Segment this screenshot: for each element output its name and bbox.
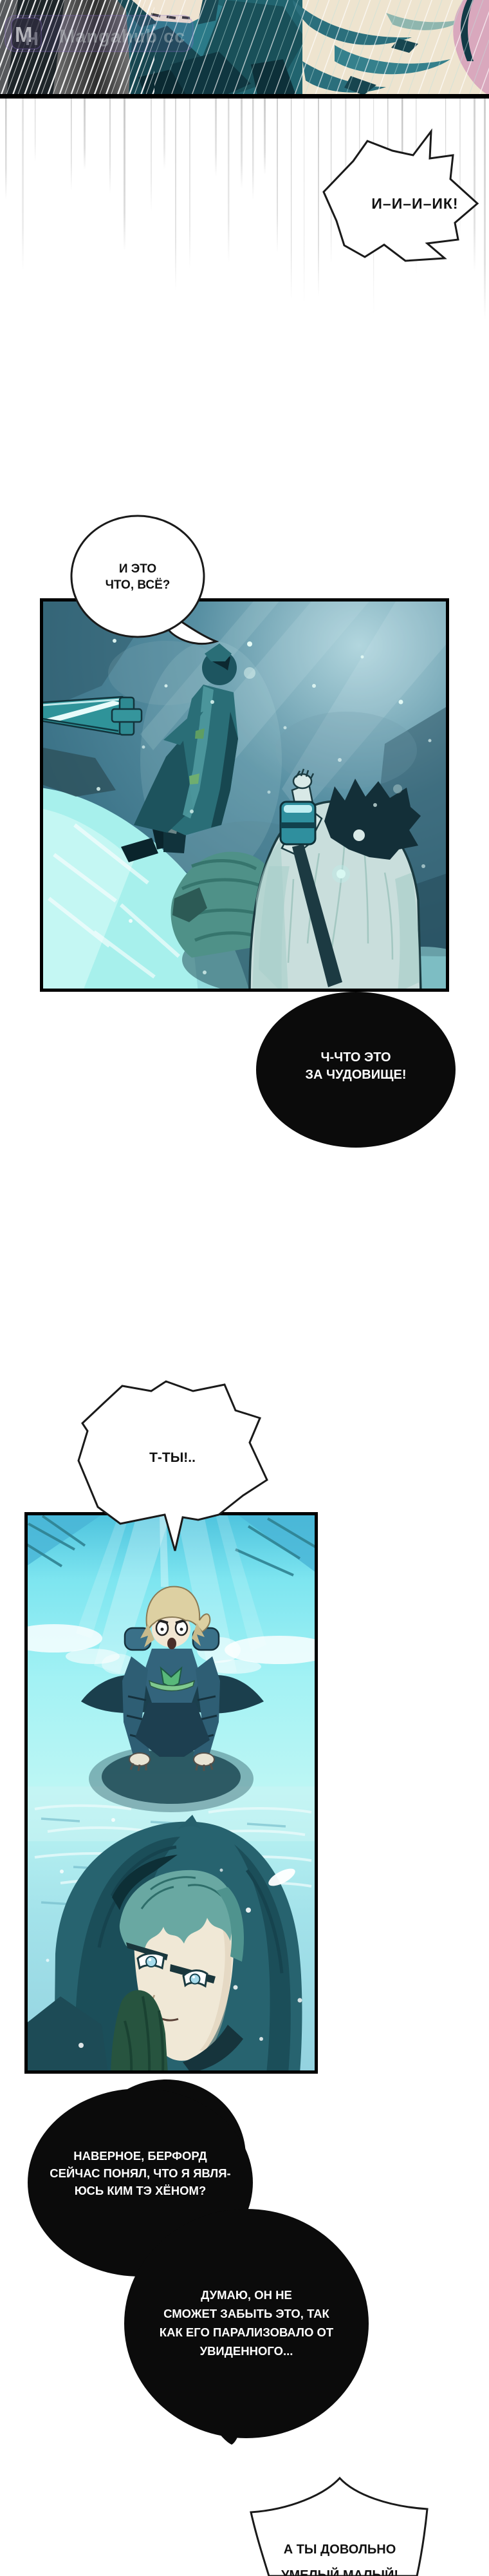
svg-text:СЕЙЧАС ПОНЯЛ, ЧТО Я ЯВЛЯ-: СЕЙЧАС ПОНЯЛ, ЧТО Я ЯВЛЯ- [50, 2166, 230, 2180]
svg-text:ЧТО, ВСЁ?: ЧТО, ВСЁ? [106, 578, 171, 592]
svg-text:Ч-ЧТО ЭТО: Ч-ЧТО ЭТО [320, 1050, 391, 1065]
svg-text:ЮСЬ КИМ ТЭ ХЁНОМ?: ЮСЬ КИМ ТЭ ХЁНОМ? [75, 2184, 207, 2197]
svg-text:КАК ЕГО ПАРАЛИЗОВАЛО ОТ: КАК ЕГО ПАРАЛИЗОВАЛО ОТ [160, 2325, 334, 2339]
svg-text:СМОЖЕТ ЗАБЫТЬ ЭТО, ТАК: СМОЖЕТ ЗАБЫТЬ ЭТО, ТАК [163, 2307, 329, 2320]
svg-text:УМЕЛЫЙ МАЛЫЙ!: УМЕЛЫЙ МАЛЫЙ! [281, 2567, 398, 2576]
svg-text:H: H [25, 29, 39, 50]
svg-text:УВИДЕННОГО...: УВИДЕННОГО... [200, 2344, 293, 2358]
svg-text:А ТЫ ДОВОЛЬНО: А ТЫ ДОВОЛЬНО [284, 2543, 396, 2557]
svg-text:Mangahub cc: Mangahub cc [59, 26, 185, 47]
svg-text:Т-ТЫ!..: Т-ТЫ!.. [149, 1450, 196, 1465]
svg-text:И–И–И–ИК!: И–И–И–ИК! [371, 195, 458, 212]
svg-text:ДУМАЮ, ОН НЕ: ДУМАЮ, ОН НЕ [201, 2288, 292, 2302]
svg-text:НАВЕРНОЕ, БЕРФОРД: НАВЕРНОЕ, БЕРФОРД [73, 2149, 207, 2163]
svg-text:ЗА ЧУДОВИЩЕ!: ЗА ЧУДОВИЩЕ! [305, 1068, 406, 1082]
svg-text:И ЭТО: И ЭТО [119, 562, 156, 576]
